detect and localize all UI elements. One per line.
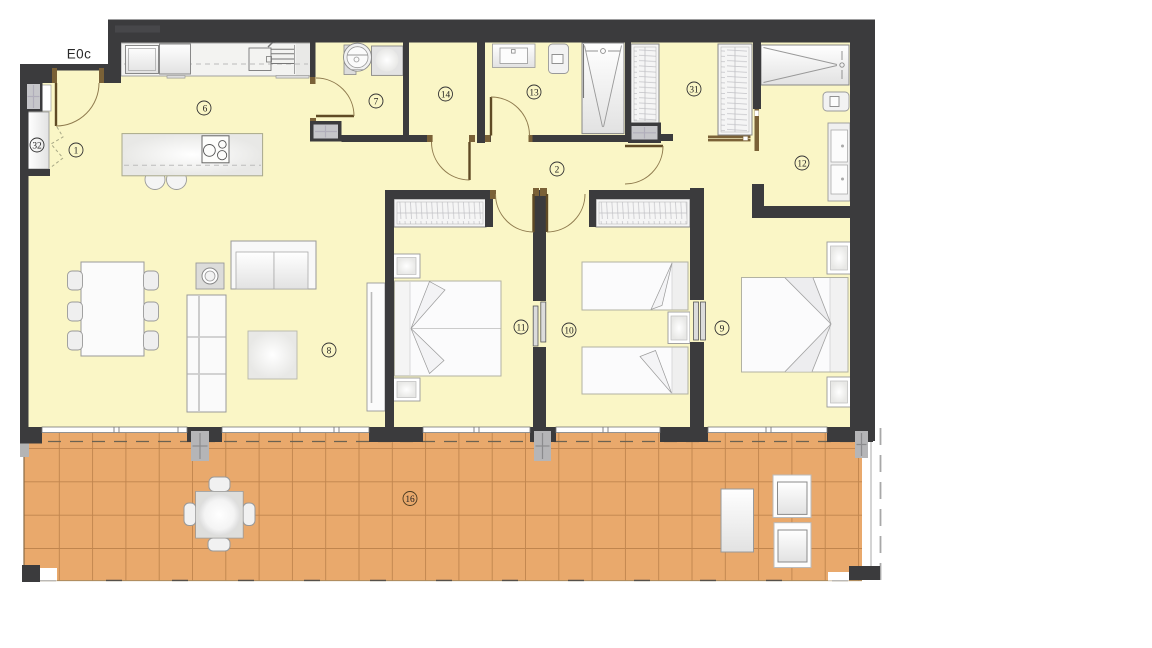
svg-text:8: 8: [327, 346, 332, 356]
svg-text:1: 1: [74, 146, 79, 156]
svg-text:32: 32: [32, 141, 42, 151]
svg-text:9: 9: [720, 324, 725, 334]
svg-text:11: 11: [516, 323, 525, 333]
svg-text:6: 6: [203, 104, 208, 114]
svg-text:12: 12: [797, 159, 807, 169]
svg-text:10: 10: [564, 326, 574, 336]
svg-text:31: 31: [689, 85, 699, 95]
svg-text:13: 13: [529, 88, 539, 98]
svg-text:16: 16: [405, 495, 415, 505]
svg-text:2: 2: [555, 165, 560, 175]
svg-text:E0c: E0c: [67, 47, 91, 62]
svg-text:7: 7: [374, 97, 379, 107]
svg-text:14: 14: [441, 90, 451, 100]
